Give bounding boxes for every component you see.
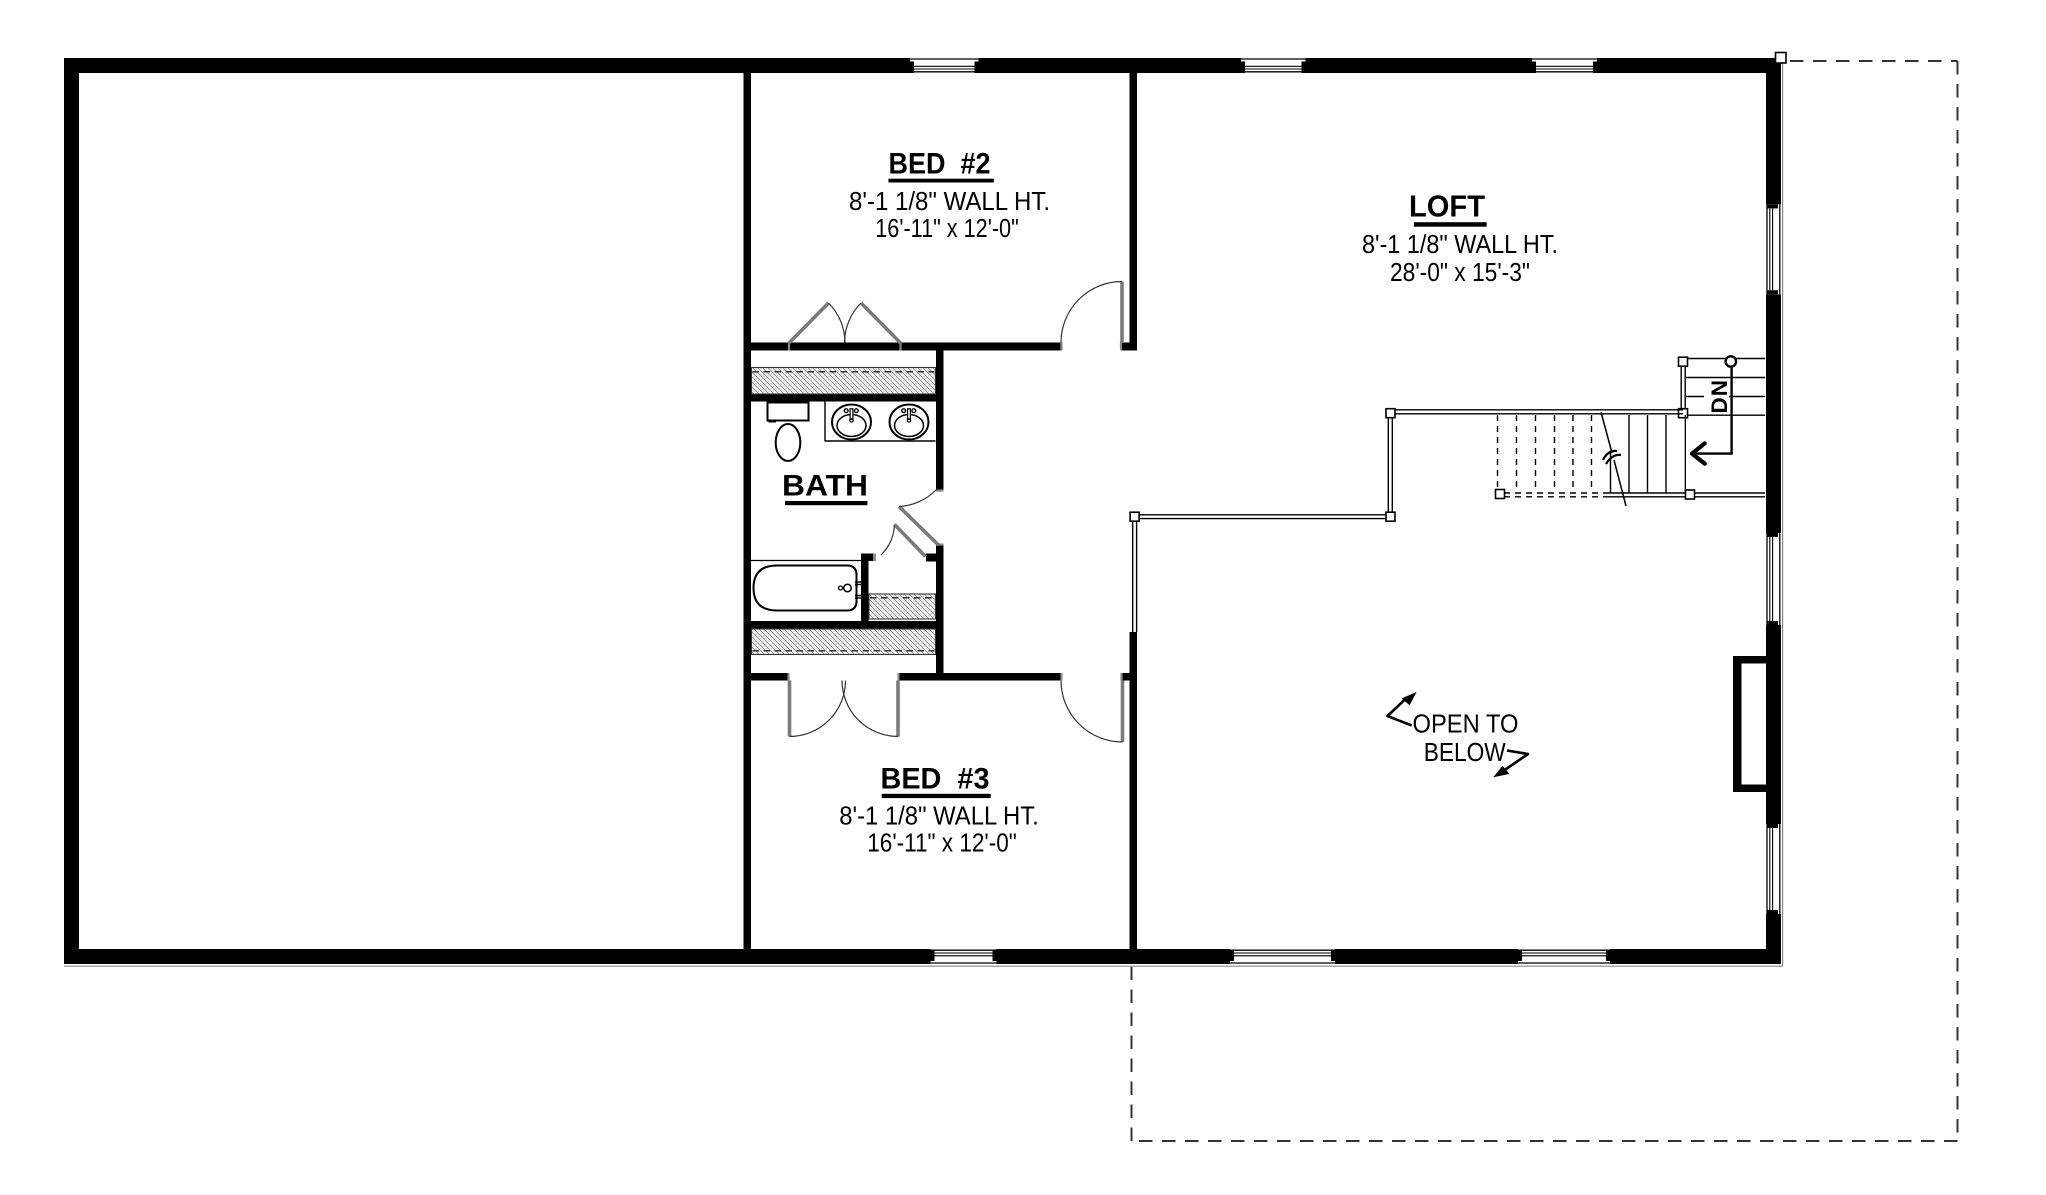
svg-text:DN: DN [1707, 379, 1732, 414]
svg-text:8'-1 1/8" WALL HT.: 8'-1 1/8" WALL HT. [849, 188, 1050, 216]
svg-text:8'-1 1/8" WALL HT.: 8'-1 1/8" WALL HT. [839, 803, 1039, 831]
svg-text:16'-11" x 12'-0": 16'-11" x 12'-0" [875, 215, 1019, 243]
svg-text:LOFT: LOFT [1409, 189, 1485, 224]
svg-text:16'-11" x 12'-0": 16'-11" x 12'-0" [867, 830, 1017, 858]
svg-text:28'-0" x 15'-3": 28'-0" x 15'-3" [1390, 259, 1530, 287]
svg-text:BATH: BATH [782, 470, 868, 503]
svg-text:BED #3: BED #3 [881, 763, 990, 796]
svg-text:8'-1 1/8" WALL HT.: 8'-1 1/8" WALL HT. [1362, 231, 1558, 259]
svg-text:BED #2: BED #2 [889, 148, 991, 181]
svg-text:OPEN TO: OPEN TO [1413, 709, 1519, 739]
svg-text:BELOW: BELOW [1424, 737, 1506, 767]
